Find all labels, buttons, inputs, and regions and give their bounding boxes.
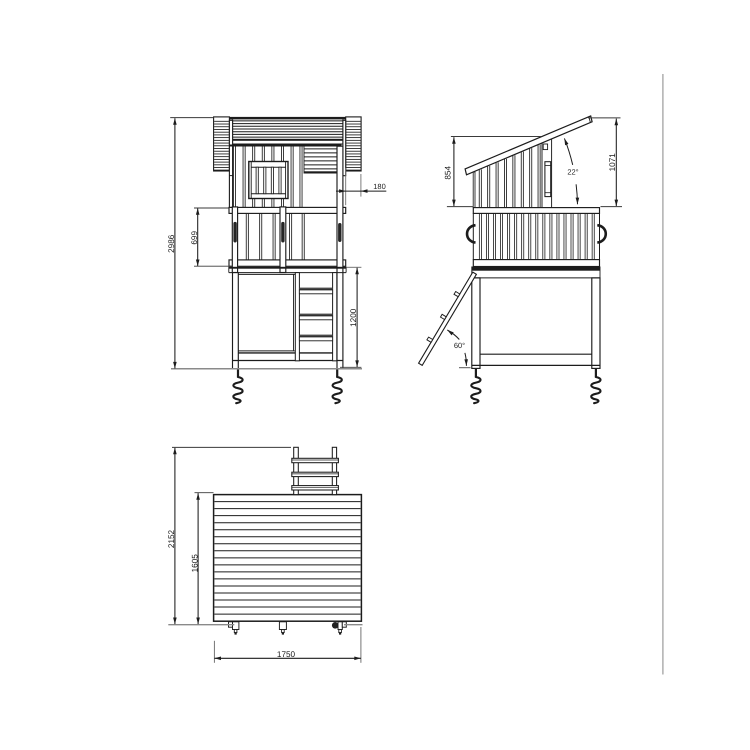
svg-text:1071: 1071 [608,153,617,172]
svg-text:60°: 60° [454,341,465,350]
svg-text:180: 180 [373,182,386,191]
svg-text:699: 699 [190,231,199,245]
svg-text:854: 854 [444,166,453,180]
svg-text:2152: 2152 [167,529,176,548]
svg-text:1605: 1605 [190,554,199,573]
svg-text:22°: 22° [567,167,578,176]
svg-text:1200: 1200 [349,308,358,327]
svg-text:1750: 1750 [277,650,296,659]
svg-text:2986: 2986 [167,234,176,253]
